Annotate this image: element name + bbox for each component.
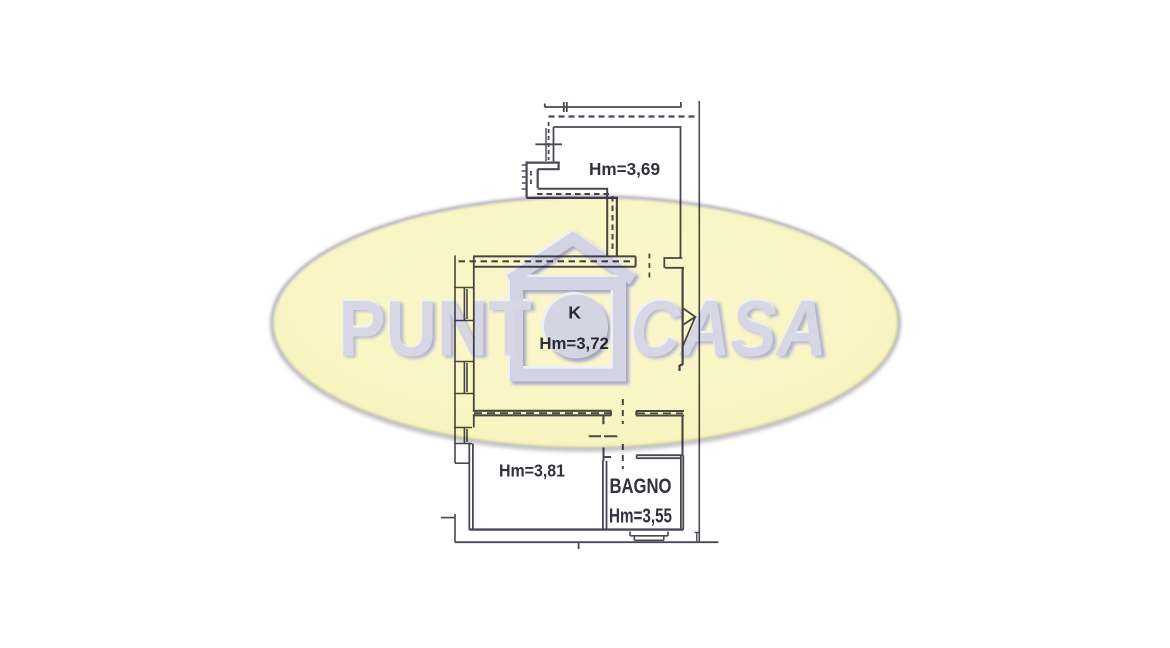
svg-text:K: K: [568, 303, 581, 323]
svg-text:Hm=3,72: Hm=3,72: [539, 334, 609, 353]
svg-text:Hm=3,69: Hm=3,69: [589, 159, 660, 179]
svg-text:Hm=3,55: Hm=3,55: [609, 505, 672, 528]
svg-text:BAGNO: BAGNO: [610, 475, 672, 498]
svg-text:CASA: CASA: [631, 284, 827, 373]
svg-text:Hm=3,81: Hm=3,81: [499, 461, 565, 481]
svg-text:PUNT: PUNT: [339, 284, 532, 373]
